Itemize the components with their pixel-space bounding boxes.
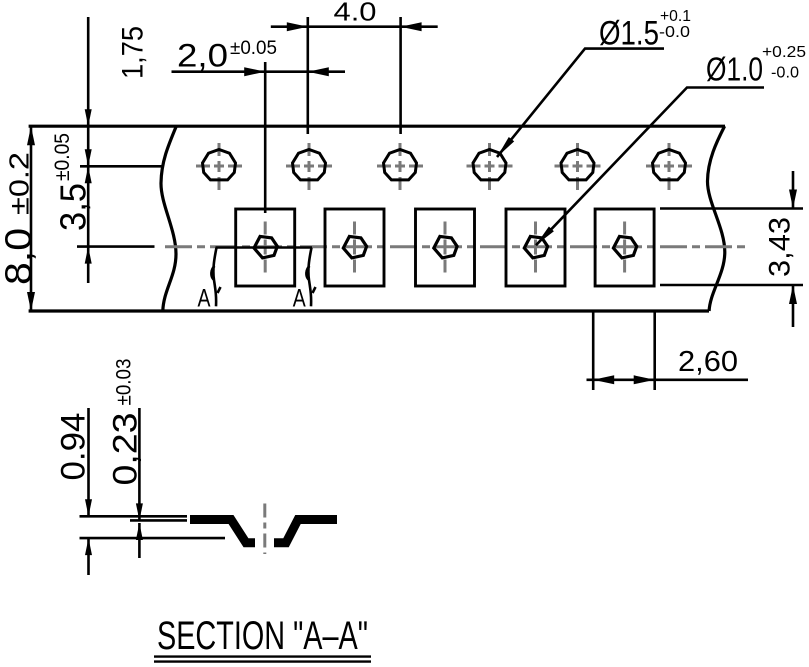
svg-text:±0.03: ±0.03 bbox=[113, 359, 136, 406]
svg-text:-0.0: -0.0 bbox=[771, 65, 799, 82]
svg-text:8,0: 8,0 bbox=[0, 228, 39, 285]
svg-text:SECTION "A–A": SECTION "A–A" bbox=[157, 614, 368, 658]
svg-text:2,60: 2,60 bbox=[678, 346, 738, 378]
svg-text:+0.25: +0.25 bbox=[762, 44, 806, 61]
svg-text:3,5: 3,5 bbox=[53, 183, 94, 231]
svg-text:4.0: 4.0 bbox=[334, 0, 377, 26]
svg-text:A: A bbox=[293, 284, 306, 312]
svg-text:Ø1.5: Ø1.5 bbox=[599, 15, 659, 53]
svg-text:±0.05: ±0.05 bbox=[230, 38, 277, 59]
svg-text:A: A bbox=[198, 284, 211, 312]
svg-text:±0.05: ±0.05 bbox=[51, 133, 74, 181]
svg-text:Ø1.0: Ø1.0 bbox=[706, 51, 763, 88]
svg-text:0.94: 0.94 bbox=[55, 413, 93, 481]
svg-text:3,43: 3,43 bbox=[764, 217, 797, 277]
svg-text:1,75: 1,75 bbox=[117, 26, 150, 79]
svg-text:2,0: 2,0 bbox=[177, 38, 228, 74]
svg-text:+0.1: +0.1 bbox=[660, 8, 691, 25]
svg-text:-0.0: -0.0 bbox=[659, 24, 690, 41]
